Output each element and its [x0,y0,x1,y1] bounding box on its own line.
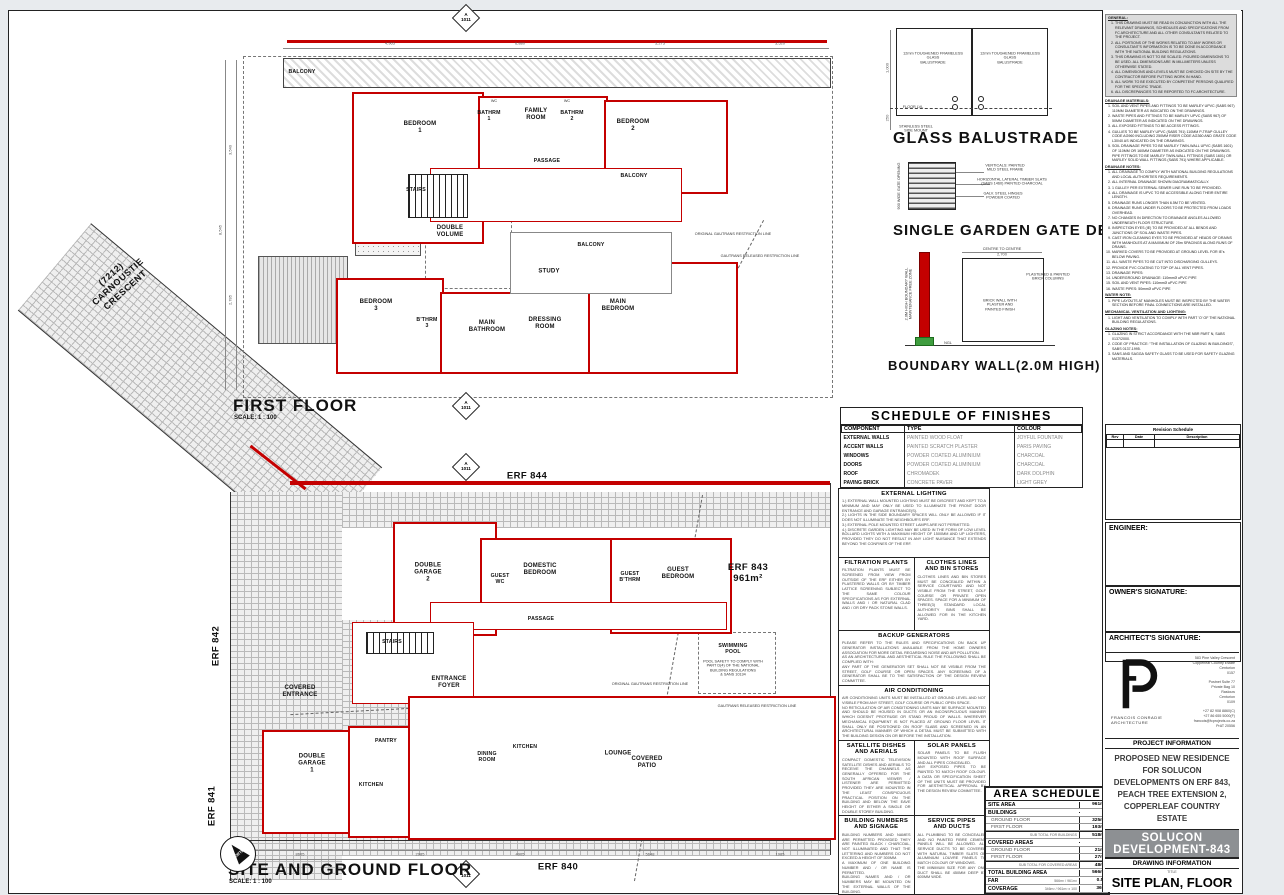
project-description: PROPOSED NEW RESIDENCE FOR SOLUCON DEVEL… [1105,749,1239,829]
notes-panel: EXTERNAL LIGHTING1.) EXTERNAL WALL MOUNT… [839,489,989,558]
notes-panel-column: BACKUP GENERATORSPLEASE REFER TO THE RUL… [839,631,989,685]
notes-section-list: ALL DRAINAGE TO COMPLY WITH NATIONAL BUI… [1105,170,1237,291]
side-mount-fixing [978,96,984,102]
area-row-label: SUB TOTAL FOR COVERED AREAS [986,863,1079,868]
area-schedule-row: SITE AREA961m² [986,801,1108,809]
notes-panel-title: EXTERNAL LIGHTING [839,489,989,498]
notes-section-item: ALL WORK TO BE EXECUTED BY COMPETENT PER… [1115,80,1234,89]
notes-panel-body: 1.) EXTERNAL WALL MOUNTED LIGHTING MUST … [839,498,989,547]
plan-label: 8605 [296,853,305,858]
notes-section-list: PIPE LAYOUTS AT MANHOLES MUST BE INSPECT… [1105,299,1237,308]
gate-callout-line [954,172,984,173]
notes-section-item: SANS AND SAGGA SAFETY GLASS TO BE USED F… [1112,352,1237,361]
notes-section: DRAINAGE MATERIALS:SOIL AND VENT PIPES A… [1105,99,1237,163]
plan-label: MAIN BEDROOM [602,299,635,313]
plan-label: 5648 [646,853,655,858]
notes-section-heading: MECHANICAL VENTILATION AND LIGHTING: [1105,310,1237,315]
finishes-col-component: COMPONENT [842,426,905,433]
notes-panel-title: SATELLITE DISHES AND AERIALS [839,741,914,757]
finishes-cell: CHARCOAL [1015,460,1082,469]
notes-section-item: WASTE PIPES AND FITTINGS TO BE MARLEY UP… [1112,114,1237,123]
notes-section-item: ALL EXPOSED FITTINGS TO BE ACCESS FITTIN… [1112,124,1237,129]
finishes-cell: WINDOWS [842,451,905,460]
area-row-label: SUB TOTAL FOR BUILDINGS [986,833,1079,838]
area-schedule-row: GROUND FLOOR325m² [986,817,1108,824]
plan-label: ERF 840 [538,863,578,874]
notes-section-item: ALL WASTE PIPES TO BE CUT INTO DISCHARGI… [1112,260,1237,265]
notes-panel-column: SOLAR PANELSSOLAR PANELS TO BE FLUSH MOU… [914,741,990,815]
notes-section-list: LIGHT AND VENTILATION TO COMPLY WITH PAR… [1105,316,1237,325]
notes-panel-body: ALL PLUMBING TO BE CONCEALED AND NO PAIN… [915,832,990,881]
plan-label: ORIGINAL GAUTRANS RESTRICTION LINE [612,682,688,686]
notes-panel: SATELLITE DISHES AND AERIALSCOMPACT DOME… [839,741,989,816]
notes-section-item: ALL DRAINAGE IS UPVC TO BE ACCESSIBLE AL… [1112,191,1237,200]
finishes-cell: EXTERNAL WALLS [842,433,905,443]
plan-label: STUDY [538,269,559,276]
notes-section-item: ALL DISCREPANCIES TO BE REPORTED TO FC A… [1115,90,1234,95]
boundary-wall-base [915,337,934,346]
first-floor-scale: SCALE: 1 : 100 [234,415,277,421]
plan-label: GALV. STEEL HINGES POWDER COATED [983,192,1022,201]
first-floor-title: FIRST FLOOR [233,396,357,416]
notes-panel-column: AIR CONDITIONINGAIR CONDITIONING UNITS M… [839,686,989,740]
notes-section-list: GLAZING IN STRICT ACCORDANCE WITH THE NB… [1105,332,1237,361]
notes-section-item: ALL INTERNAL DRAINAGE SHOWN DIAGRAMMATIC… [1112,180,1237,185]
plan-label: LOUNGE [605,751,632,758]
side-mount-fixing [952,96,958,102]
plan-label: KITCHEN [359,783,383,789]
living-band-block [408,696,836,840]
notes-section-item: DRAINAGE RUNS LONGER THAN 6.5M TO BE VEN… [1112,201,1237,206]
plan-label: GUEST BEDROOM [662,567,695,581]
site-plan-title: SITE AND GROUND FLOOR [228,860,472,880]
site-boundary-left [230,492,231,880]
notes-section-item: SOIL AND VENT PIPES AND FITTINGS TO BE M… [1112,104,1237,113]
plan-label: BEDROOM 3 [360,299,393,313]
plan-label: 3,520 [775,42,785,47]
notes-panel: FILTRATION PLANTSFILTRATION PLANTS MUST … [839,558,989,631]
finishes-cell: POWDER COATED ALUMINIUM [905,460,1015,469]
plan-label: VERTICALS: PAINTED MILD STEEL FRAME [985,164,1024,173]
area-schedule-row: SUB TOTAL FOR BUILDINGS518m² [986,831,1108,839]
notes-panel-body: SOLAR PANELS TO BE FLUSH MOUNTED WITH RO… [915,750,990,795]
plan-label: STAIRS [382,640,402,646]
area-schedule: AREA SCHEDULE SITE AREA961m²BUILDINGSGRO… [984,786,1110,895]
area-row-label: FAR [986,877,1054,884]
area-row-formula: 346m² / 961m² x 100 [1045,887,1079,891]
plan-label: SWIMMING POOL [718,644,747,656]
notes-panel-body: AIR CONDITIONING UNITS MUST BE INSTALLED… [839,695,989,740]
notes-section-item: ALL DRAINAGE TO COMPLY WITH NATIONAL BUI… [1112,170,1237,179]
notes-section-item: UNDERGROUND DRAINAGE: 110mmØ uPVC PIPE [1112,276,1237,281]
plan-label: COVERED PATIO [631,756,662,770]
firm-address-line: PrAT 20556 [1173,724,1235,729]
title-block-sidebar: GENERAL:THIS DRAWING MUST BE READ IN CON… [1102,10,1241,892]
finishes-cell: PAINTED SCRATCH PLASTER [905,442,1015,451]
notes-section-item: INSPECTION EYES (IE) TO BE PROVIDED AT A… [1112,226,1237,235]
plan-label: ENTRANCE FOYER [432,676,467,690]
notes-section-item: SOIL AND VENT PIPES: 110mmØ uPVC PIPE [1112,281,1237,286]
finishes-cell: CHROMADEK [905,469,1015,478]
notes-panel-title: BUILDING NUMBERS AND SIGNAGE [839,816,914,832]
first-floor-stairs [408,174,468,218]
plan-label: BALCONY [577,243,604,249]
plan-label: BATHRM 2 [560,111,583,123]
plan-label: ERF 844 [507,472,547,483]
plan-label: FAMILY ROOM [525,108,548,122]
plan-label: POOL SAFETY TO COMPLY WITH PART D(4) OF … [703,659,763,676]
notes-panel-title: CLOTHES LINES AND BIN STORES [915,558,990,574]
schedule-of-finishes: SCHEDULE OF FINISHES COMPONENT TYPE COLO… [840,407,1083,488]
finishes-row: DOORSPOWDER COATED ALUMINIUMCHARCOAL [842,460,1082,469]
notes-section-item: DRAINAGE RUNS UNDER FLOORS TO BE PROTECT… [1112,206,1237,215]
area-schedule-row: BUILDINGS [986,809,1108,817]
plan-label: DRESSING ROOM [529,317,562,331]
notes-section-item: SOIL DRAINAGE PIPES TO BE MARLEY TWIN-WA… [1112,144,1237,163]
plan-label: 4,965 [385,42,395,47]
site-plan-scale: SCALE: 1 : 100 [229,879,272,885]
plan-label: BALCONY [620,174,647,180]
architecture-firm-logo [1111,656,1167,712]
notes-panel: BACKUP GENERATORSPLEASE REFER TO THE RUL… [839,631,989,686]
notes-section-item: GULLIES TO BE MARLEY UPVC (SABS 791) 110… [1112,130,1237,144]
finishes-cell: LIGHT GREY [1015,478,1082,487]
dim-line [283,48,829,49]
area-row-label: SITE AREA [986,801,1079,808]
finishes-row: EXTERNAL WALLSPAINTED WOOD FLOATJOYFUL F… [842,433,1082,443]
notes-panel-column: EXTERNAL LIGHTING1.) EXTERNAL WALL MOUNT… [839,489,989,557]
plan-label: WC [491,99,497,103]
notes-panel: BUILDING NUMBERS AND SIGNAGEBUILDING NUM… [839,816,989,895]
area-schedule-row: COVERED AREAS [986,839,1108,847]
first-floor-top-wall [287,40,827,43]
plan-label: ERF 842 [212,626,223,666]
glass-balustrade-title: GLASS BALUSTRADE [893,130,1079,148]
project-information-heading: PROJECT INFORMATION [1105,738,1239,749]
plan-label: 8,545 [219,225,224,235]
engineer-label: ENGINEER: [1106,523,1240,534]
balcony-strip [283,58,831,88]
finishes-cell: JOYFUL FOUNTAIN [1015,433,1082,443]
notes-section-item: ALL DIMENSIONS AND LEVELS MUST BE CHECKE… [1115,70,1234,79]
notes-section-item: NO CHANGES IN DIRECTION TO DRAINAGE ANGL… [1112,216,1237,225]
notes-panel-column: FILTRATION PLANTSFILTRATION PLANTS MUST … [839,558,914,630]
notes-panel-column: BUILDING NUMBERS AND SIGNAGEBUILDING NUM… [839,816,914,894]
notes-panel-body: PLEASE REFER TO THE RULES AND SPECIFICAT… [839,640,989,685]
finishes-cell: CHARCOAL [1015,451,1082,460]
estate-rules-notes: EXTERNAL LIGHTING1.) EXTERNAL WALL MOUNT… [838,488,990,895]
garden-gate-graphic [908,162,956,210]
plan-label: GUEST WC [491,574,510,586]
plan-label: DOMESTIC BEDROOM [523,563,556,577]
plan-label: 12mm TOUGHENED FRAMELESS GLASS BALUSTRAD… [903,51,963,64]
plan-label: 250 [886,115,891,122]
notes-section-item: DRAINAGE PIPES: [1112,271,1237,276]
plan-label: PLASTERED & PAINTED BRICK COLUMNS [1026,273,1069,282]
development-banner: SOLUCON DEVELOPMENT-843 [1105,829,1239,858]
owner-signature-label: OWNER'S SIGNATURE: [1106,587,1240,598]
plan-label: DOUBLE GARAGE 1 [298,754,326,775]
area-row-label: FIRST FLOOR [986,854,1079,860]
revision-schedule-title: Revision Schedule [1106,425,1240,434]
gate-callout-line [954,196,984,197]
plan-label: BRICK WALL WITH PLASTER AND PAINTED FINI… [983,298,1016,311]
plan-label: 2,700 [997,253,1007,258]
notes-section: DRAINAGE NOTES:ALL DRAINAGE TO COMPLY WI… [1105,165,1237,291]
plan-label: GAUTRANS RELEASED RESTRICTION LINE [718,704,797,708]
plan-label: DOUBLE VOLUME [437,225,464,239]
area-schedule-row: COVERAGE346m² / 961m² x 10036% [986,885,1108,893]
area-schedule-row: TOTAL BUILDING AREA566m² [986,869,1108,877]
finishes-cell: PARIS PAVING [1015,442,1082,451]
plan-label: COVERED ENTRANCE [283,685,318,699]
plan-label: GUEST B'THRM [619,572,640,584]
plan-label: GAUTRANS RELEASED RESTRICTION LINE [721,254,800,258]
plan-label: 1985 [776,853,785,858]
finishes-row: ROOFCHROMADEKDARK DOLPHIN [842,469,1082,478]
finishes-cell: ROOF [842,469,905,478]
plan-label: DINING ROOM [477,752,496,764]
plan-label: PASSAGE [534,159,560,165]
area-row-label: GROUND FLOOR [986,817,1079,823]
drawing-title: SITE PLAN, FLOOR PLAN & SCHEDULES [1105,874,1239,895]
area-row-formula: 566m² / 961m² [1054,879,1079,883]
finishes-cell: ACCENT WALLS [842,442,905,451]
area-row-label: BUILDINGS [986,809,1079,816]
finishes-row: WINDOWSPOWDER COATED ALUMINIUMCHARCOAL [842,451,1082,460]
area-row-label: GROUND FLOOR [986,847,1079,853]
area-row-label: TOTAL BUILDING AREA [986,869,1079,876]
notes-section-item: CODE OF PRACTICE: "THE INSTALLATION OF G… [1112,342,1237,351]
notes-section-list: SOIL AND VENT PIPES AND FITTINGS TO BE M… [1105,104,1237,162]
plan-label: BATHRM 1 [477,111,500,123]
firm-block: FRANCOIS CONRADIE ARCHITECTURE 583 Pine … [1105,652,1239,739]
notes-section-item: MARKED COVERS TO BE PROVIDED AT GROUND L… [1112,250,1237,259]
site-boundary-bottom [230,840,830,841]
plan-label: 2,785 [229,295,234,305]
notes-panel-title: SERVICE PIPES AND DUCTS [915,816,990,832]
notes-panel-body: BUILDING NUMBERS AND NAMES ARE PERMITTED… [839,832,914,894]
notes-section-item: THIS DRAWING IS NOT TO BE SCALED. FIGURE… [1115,55,1234,69]
area-schedule-title: AREA SCHEDULE [986,788,1108,801]
firm-name: FRANCOIS CONRADIE ARCHITECTURE [1111,715,1162,725]
plan-label: CENTRE TO CENTRE [983,247,1021,251]
notes-section-heading: GENERAL: [1108,16,1234,21]
notes-section-heading: DRAINAGE MATERIALS: [1105,99,1237,104]
plan-label: 4905 [516,853,525,858]
plan-label: PASSAGE [528,617,554,623]
notes-section: WATER NOTE:PIPE LAYOUTS AT MANHOLES MUST… [1105,293,1237,308]
notes-panel-body: COMPACT DOMESTIC TELEVISION SATELLITE DI… [839,757,914,815]
plan-label: 2985 [416,853,425,858]
area-schedule-row: FAR566m² / 961m²0.59 [986,877,1108,885]
finishes-col-type: TYPE [905,426,1015,433]
notes-section-item: CAST IRON CLEANING EYES TO BE PROVIDED A… [1112,236,1237,250]
plan-label: WC [564,99,570,103]
notes-section-item: ALL PORTIONS OF THE WORKS RELATED TO ANY… [1115,41,1234,55]
plan-label: PANTRY [375,739,397,745]
notes-panel-title: BACKUP GENERATORS [839,631,989,640]
firm-address: 583 Pine Valley CrescentCopperleaf Count… [1173,656,1235,729]
area-schedule-row: FIRST FLOOR27m² [986,854,1108,861]
notes-section-item: PIPE LAYOUTS AT MANHOLES MUST BE INSPECT… [1112,299,1237,308]
plan-label: NGL [944,341,952,345]
ground-passage-block [430,602,727,630]
notes-section-item: 1 GULLEY PER EXTERNAL SEWER LINE RUN TO … [1112,186,1237,191]
notes-panel-column: CLOTHES LINES AND BIN STORESCLOTHES LINE… [914,558,990,630]
architect-signature-label: ARCHITECT'S SIGNATURE: [1106,633,1240,644]
notes-section-item: THIS DRAWING MUST BE READ IN CONJUNCTION… [1115,21,1234,40]
area-schedule-row: GROUND FLOOR21m² [986,847,1108,854]
plan-label: MAIN BATHROOM [469,320,505,334]
finishes-row: ACCENT WALLSPAINTED SCRATCH PLASTERPARIS… [842,442,1082,451]
finishes-cell: PAINTED WOOD FLOAT [905,433,1015,443]
notes-section-heading: GLAZING NOTES: [1105,327,1237,332]
plan-label: STAIRS [406,188,426,194]
plan-label: FLOOR LVL [903,105,924,109]
dim-line [230,850,830,851]
notes-panel-column: SERVICE PIPES AND DUCTSALL PLUMBING TO B… [914,816,990,894]
dim-line [225,60,226,390]
drawing-information-heading: DRAWING INFORMATION [1105,858,1239,869]
concrete-slab-patch [258,256,348,344]
plan-label: KITCHEN [513,745,537,751]
north-arrow-icon: NORTH [220,836,256,872]
plan-label: 3,540 [229,145,234,155]
plan-label: 6,880 [515,42,525,47]
finishes-row: PAVING BRICKCONCRETE PAVERLIGHT GREY [842,478,1082,487]
balustrade-panel-left [896,28,972,116]
notes-section-item: PROVIDE PVC COATING TO TOP OF ALL VENT P… [1112,266,1237,271]
plan-label: 5,275 [655,42,665,47]
general-notes: GENERAL:THIS DRAWING MUST BE READ IN CON… [1105,14,1237,364]
finishes-cell: PAVING BRICK [842,478,905,487]
area-schedule-row: FIRST FLOOR193m² [986,824,1108,831]
notes-panel-title: FILTRATION PLANTS [839,558,914,567]
notes-section: GLAZING NOTES:GLAZING IN STRICT ACCORDAN… [1105,327,1237,362]
plan-label: 1,000 [886,63,891,73]
site-boundary-top [290,481,830,485]
plan-label: 900 WIDE GATE OPENING [897,163,901,210]
plan-label: DOUBLE GARAGE 2 [414,563,442,584]
dim-line [236,60,237,390]
finishes-col-colour: COLOUR [1015,426,1082,433]
notes-section-heading: DRAINAGE NOTES: [1105,165,1237,170]
owner-signature-box: OWNER'S SIGNATURE: [1105,586,1241,632]
notes-panel-title: SOLAR PANELS [915,741,990,750]
finishes-cell: DOORS [842,460,905,469]
notes-section-item: WASTE PIPES: 50mmØ uPVC PIPE [1112,287,1237,292]
engineer-box: ENGINEER: [1105,522,1241,586]
area-schedule-row: SUB TOTAL FOR COVERED AREAS48m² [986,861,1108,869]
notes-section-heading: WATER NOTE: [1105,293,1237,298]
plan-label: BEDROOM 1 [404,121,437,135]
architectural-drawing-sheet: NORTH FIRST FLOOR SCALE: 1 : 100 SITE AN… [0,0,1284,895]
plan-label: ORIGINAL GAUTRANS RESTRICTION LINE [695,232,771,236]
balustrade-panel-right [972,28,1048,116]
plan-label: HORIZONTAL LATERAL TIMBER SLATS (SABS 14… [977,178,1047,187]
side-mount-fixing [952,104,958,110]
boundary-wall-title: BOUNDARY WALL(2.0M HIGH) [888,358,1101,373]
notes-panel-body: FILTRATION PLANTS MUST BE SCREENED FROM … [839,567,914,612]
revision-schedule: Revision Schedule Rev Date Description [1105,424,1241,520]
notes-section: GENERAL:THIS DRAWING MUST BE READ IN CON… [1105,14,1237,97]
plan-label: 2.0M HIGH BOUNDARY WALL MAINTENANCE FREE… [905,268,914,321]
notes-panel-column: SATELLITE DISHES AND AERIALSCOMPACT DOME… [839,741,914,815]
plan-label: BEDROOM 2 [617,119,650,133]
notes-panel-title: AIR CONDITIONING [839,686,989,695]
finishes-cell: DARK DOLPHIN [1015,469,1082,478]
finishes-title: SCHEDULE OF FINISHES [841,408,1082,425]
area-row-label: FIRST FLOOR [986,824,1079,830]
notes-panel-body: CLOTHES LINES AND BIN STORES MUST BE CON… [915,574,990,623]
notes-section-list: THIS DRAWING MUST BE READ IN CONJUNCTION… [1108,21,1234,94]
notes-panel: AIR CONDITIONINGAIR CONDITIONING UNITS M… [839,686,989,741]
area-row-label: COVERED AREAS [986,839,1079,846]
plan-label: B'THRM 3 [416,318,437,330]
plan-label: BALCONY [288,70,315,76]
plan-label: ERF 843 961m² [728,563,768,585]
finishes-cell: POWDER COATED ALUMINIUM [905,451,1015,460]
plan-label: 12mm TOUGHENED FRAMELESS GLASS BALUSTRAD… [980,51,1040,64]
boundary-wall-graphic [919,252,930,339]
side-mount-fixing [978,104,984,110]
notes-section-item: LIGHT AND VENTILATION TO COMPLY WITH PAR… [1112,316,1237,325]
notes-section-item: GLAZING IN STRICT ACCORDANCE WITH THE NB… [1112,332,1237,341]
notes-section: MECHANICAL VENTILATION AND LIGHTING:LIGH… [1105,310,1237,325]
finishes-cell: CONCRETE PAVER [905,478,1015,487]
plan-label: ERF 841 [208,786,219,826]
area-row-label: COVERAGE [986,885,1045,892]
